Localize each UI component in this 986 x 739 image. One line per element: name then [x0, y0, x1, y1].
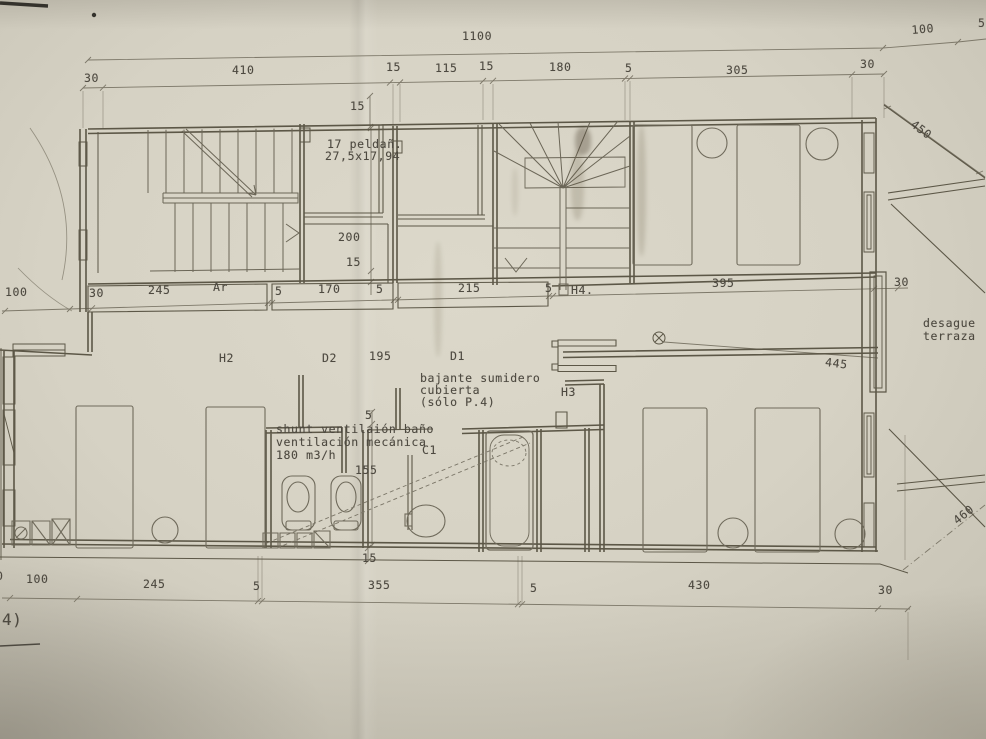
note-shunt-3: 180 m3/h — [276, 449, 336, 461]
dim-bot-430: 430 — [688, 579, 711, 591]
dim-mid-170: 170 — [318, 283, 341, 295]
dim-bot-30: 30 — [878, 584, 893, 596]
note-desague-2: terraza — [923, 330, 976, 342]
dim-mid-5a: 5 — [275, 285, 283, 297]
dim-bot-245: 245 — [143, 578, 166, 590]
label-h3: H3 — [561, 386, 576, 398]
note-stair-2: 27,5x17,94 — [325, 150, 400, 162]
label-armario: Ar — [213, 281, 228, 293]
dim-bot-0: 0 — [0, 570, 4, 582]
dim-top-115: 115 — [435, 62, 458, 74]
dim-top-30-right: 30 — [860, 58, 875, 70]
dim-top-5: 5 — [625, 62, 633, 74]
dim-top-5-edge: 5 — [978, 17, 986, 29]
dim-wall-15: 15 — [350, 100, 365, 112]
dim-top-100: 100 — [911, 22, 935, 36]
dim-v-15b: 15 — [362, 552, 377, 564]
dim-diag-450: 450 — [909, 118, 934, 141]
note-desague-1: desague — [923, 317, 976, 329]
dim-bot-5a: 5 — [253, 580, 261, 592]
label-d2: D2 — [322, 352, 337, 364]
dim-v-155: 155 — [355, 464, 378, 476]
dim-v-5: 5 — [365, 409, 373, 421]
dim-top-305: 305 — [726, 64, 749, 76]
dim-v-15: 15 — [346, 256, 361, 268]
note-bajante-3: (sólo P.4) — [420, 396, 495, 408]
dim-bot-100: 100 — [26, 573, 49, 585]
labels-layer: 110030410151151518053053010051517 peldañ… — [0, 0, 986, 739]
note-shunt-2: ventilación mecánica — [276, 436, 426, 448]
floor-plan-sheet: 110030410151151518053053010051517 peldañ… — [0, 0, 986, 739]
dim-mid-30: 30 — [89, 287, 104, 299]
dim-top-410: 410 — [232, 64, 255, 76]
dim-top-15b: 15 — [479, 60, 494, 72]
note-shunt-1: shunt ventilaión baño — [276, 423, 434, 435]
dim-top-180: 180 — [549, 61, 572, 73]
dim-mid-30r: 30 — [894, 276, 909, 288]
label-c1: C1 — [422, 444, 437, 456]
dim-mid-245: 245 — [148, 284, 171, 296]
dim-top-15a: 15 — [386, 61, 401, 73]
dim-mid-395: 395 — [712, 277, 735, 289]
dim-bot-355: 355 — [368, 579, 391, 591]
dim-diag-460: 460 — [951, 503, 976, 527]
dim-445: 445 — [825, 356, 849, 371]
sheet-note: 4) — [2, 612, 22, 629]
dim-195: 195 — [369, 350, 392, 362]
dim-mid-5b: 5 — [376, 283, 384, 295]
label-h2: H2 — [219, 352, 234, 364]
dim-top-30-left: 30 — [84, 72, 99, 84]
label-d1: D1 — [450, 350, 465, 362]
dim-overall-1100: 1100 — [462, 30, 492, 42]
dim-mid-100: 100 — [5, 286, 28, 298]
dim-mid-5c: 5 — [545, 282, 553, 294]
dim-v-200: 200 — [338, 231, 361, 243]
dim-bot-5b: 5 — [530, 582, 538, 594]
dim-mid-215: 215 — [458, 282, 481, 294]
label-h4: H4. — [571, 284, 594, 296]
